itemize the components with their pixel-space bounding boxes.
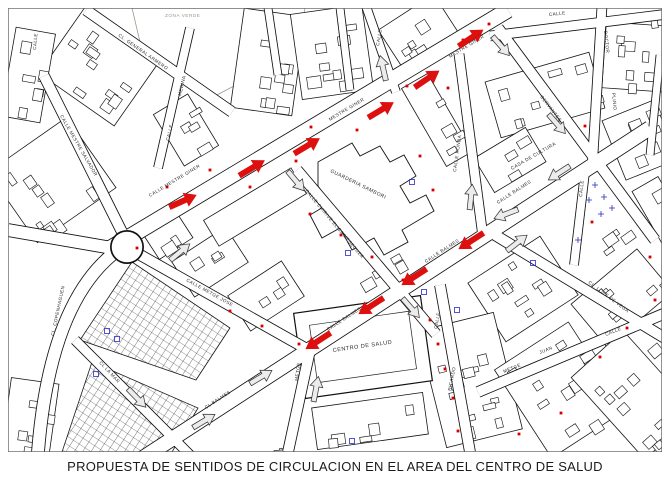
- red-marker: [626, 327, 629, 330]
- building: [307, 76, 322, 90]
- building: [282, 84, 293, 94]
- building: [319, 63, 330, 72]
- tree-icon: [601, 194, 607, 200]
- building: [648, 343, 662, 359]
- map-canvas: CALLECL. GENERAL ARMEROCALLEMEDINACALLE …: [8, 8, 662, 452]
- map-title: PROPUESTA DE SENTIDOS DE CIRCULACION EN …: [0, 459, 670, 474]
- red-marker: [649, 256, 652, 259]
- street-label: CALLE: [549, 10, 566, 17]
- red-marker: [591, 221, 594, 224]
- red-marker: [356, 129, 359, 132]
- red-marker: [295, 160, 298, 163]
- building-block: [597, 223, 636, 258]
- tree-icon: [592, 182, 598, 188]
- blue-detail: [410, 180, 415, 185]
- red-marker: [457, 430, 460, 433]
- red-marker: [599, 356, 602, 359]
- blue-detail: [422, 290, 427, 295]
- building: [265, 98, 275, 109]
- red-marker: [584, 125, 587, 128]
- building-block: [290, 8, 373, 100]
- red-marker: [419, 155, 422, 158]
- block-outline: [290, 8, 373, 100]
- building: [604, 246, 615, 256]
- red-marker: [437, 343, 440, 346]
- red-marker: [560, 412, 563, 415]
- building: [18, 107, 28, 119]
- blue-detail: [455, 308, 460, 313]
- building: [32, 88, 43, 101]
- building: [315, 43, 327, 54]
- building: [618, 46, 625, 58]
- building: [333, 70, 342, 80]
- red-marker: [447, 87, 450, 90]
- red-marker: [488, 23, 491, 26]
- red-marker: [452, 397, 455, 400]
- red-marker: [229, 310, 232, 313]
- red-marker: [136, 247, 139, 250]
- building: [260, 77, 272, 90]
- building: [628, 83, 637, 93]
- building: [18, 431, 28, 441]
- red-marker: [518, 433, 521, 436]
- red-marker: [654, 299, 657, 302]
- road: [592, 8, 602, 170]
- red-marker: [432, 189, 435, 192]
- red-marker: [444, 368, 447, 371]
- building: [274, 74, 285, 83]
- red-marker: [371, 256, 374, 259]
- building: [621, 230, 637, 245]
- building-block: [474, 127, 546, 192]
- tree-icon: [598, 211, 604, 217]
- red-marker: [310, 126, 313, 129]
- plan-page: CALLECL. GENERAL ARMEROCALLEMEDINACALLE …: [0, 0, 670, 488]
- tree-icon: [586, 197, 592, 203]
- red-marker: [298, 343, 301, 346]
- building: [626, 70, 634, 80]
- red-marker: [406, 85, 409, 88]
- building: [351, 68, 364, 79]
- building: [617, 36, 625, 44]
- building: [642, 51, 649, 62]
- building: [20, 41, 32, 54]
- zone-label: ZONA VERDE: [165, 13, 200, 19]
- street-label: PLINIO: [611, 93, 618, 111]
- blue-detail: [346, 251, 351, 256]
- building: [346, 24, 357, 31]
- building: [328, 438, 338, 448]
- red-marker: [309, 213, 312, 216]
- building: [360, 277, 377, 293]
- building: [368, 423, 380, 436]
- red-marker: [249, 186, 252, 189]
- map-frame: CALLECL. GENERAL ARMEROCALLEMEDINACALLE …: [8, 8, 662, 452]
- tree-icon: [609, 205, 615, 211]
- red-marker: [209, 169, 212, 172]
- red-marker: [429, 319, 432, 322]
- building: [405, 405, 414, 416]
- red-marker: [261, 325, 264, 328]
- building: [276, 106, 289, 115]
